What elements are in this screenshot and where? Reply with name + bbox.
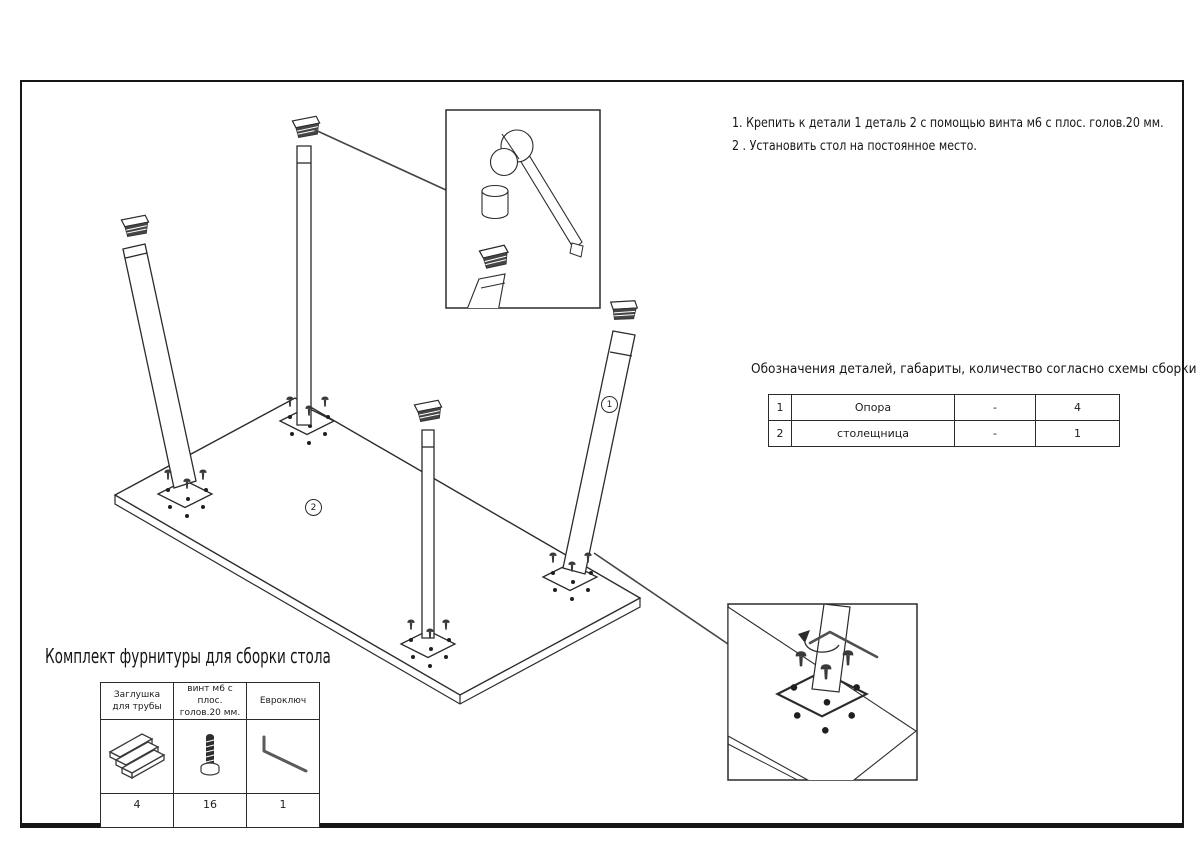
part-name: Опора: [792, 395, 955, 421]
hardware-qty: 4: [101, 794, 174, 828]
tube-cap-icon: [414, 400, 442, 422]
assembly-instructions: 1. Крепить к детали 1 деталь 2 с помощью…: [732, 112, 1164, 158]
part-qty: 1: [1036, 421, 1120, 447]
hardware-name: винт м6 с плос. голов.20 мм.: [174, 683, 247, 720]
leg-back-left: [297, 146, 311, 425]
detail-view-key: [728, 604, 917, 801]
instruction-step-2: 2 . Установить стол на постоянное место.: [732, 135, 1164, 158]
hardware-kit-table: Заглушка для трубы винт м6 с плос. голов…: [100, 682, 320, 828]
part-label-leg: 1: [601, 396, 618, 413]
tube-cap-icon: [121, 215, 149, 237]
hardware-name: Евроключ: [247, 683, 320, 720]
detail-view-cap: [446, 110, 600, 312]
table-row: 2 столещница - 1: [769, 421, 1120, 447]
part-size: -: [955, 395, 1036, 421]
leg-right: [563, 331, 635, 574]
parts-table-title: Обозначения деталей, габариты, количеств…: [751, 361, 1197, 377]
hardware-qty: 16: [174, 794, 247, 828]
leg-front-left: [123, 244, 196, 488]
hardware-qty: 1: [247, 794, 320, 828]
parts-table: 1 Опора - 4 2 столещница - 1: [768, 394, 1120, 447]
part-number: 1: [769, 395, 792, 421]
table-row: 1 Опора - 4: [769, 395, 1120, 421]
part-label-top: 2: [305, 499, 322, 516]
hardware-header-row: Заглушка для трубы винт м6 с плос. голов…: [101, 683, 320, 720]
hardware-name: Заглушка для трубы: [101, 683, 174, 720]
hex-key-icon: [252, 730, 314, 780]
leg-front-center: [422, 430, 434, 638]
hardware-kit-title: Комплект фурнитуры для сборки стола: [45, 644, 331, 668]
hardware-image-row: [101, 720, 320, 794]
tube-cap-icon: [292, 116, 320, 138]
part-size: -: [955, 421, 1036, 447]
part-name: столещница: [792, 421, 955, 447]
hardware-qty-row: 4 16 1: [101, 794, 320, 828]
tube-cap-icon: [106, 726, 168, 784]
part-number: 2: [769, 421, 792, 447]
screw-icon: [194, 729, 226, 781]
part-qty: 4: [1036, 395, 1120, 421]
instruction-step-1: 1. Крепить к детали 1 деталь 2 с помощью…: [732, 112, 1164, 135]
tube-cap-icon: [609, 299, 637, 321]
